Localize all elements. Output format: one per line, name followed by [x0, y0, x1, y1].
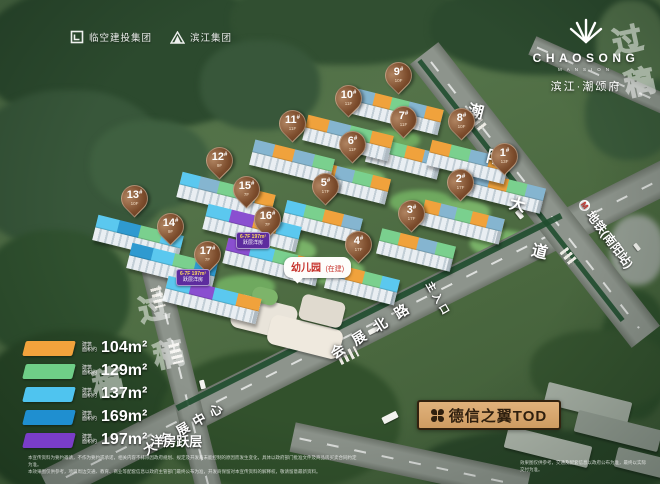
tod-badge: 德信之翼TOD [417, 400, 561, 430]
building-pin-10[interactable]: 10#11F [335, 85, 361, 119]
legend-caption: 建筑面积约 [82, 389, 97, 400]
legend-area: 104m² [101, 339, 147, 357]
linkong-logo-icon [70, 30, 84, 44]
disclaimer-line1: 本宣传资料为要约邀请，不作为要约或承诺，相关内容不排除因政府规划、规定及开发商未… [28, 454, 358, 468]
disclaimer-left: 本宣传资料为要约邀请，不作为要约或承诺，相关内容不排除因政府规划、规定及开发商未… [28, 454, 358, 475]
kindergarten-title: 幼儿园 [291, 263, 321, 274]
project-brand: CHAOSONG MANSION 滨江·潮颂府 [522, 16, 650, 94]
legend-row: 建筑面积约129m² [24, 363, 202, 379]
developer-logos: 临空建投集团 滨江集团 [70, 30, 232, 44]
building-pin-11[interactable]: 11#11F [279, 110, 305, 144]
developer-logo-linkong-label: 临空建投集团 [89, 30, 152, 44]
legend-area: 137m² [101, 385, 147, 403]
building-pin-12[interactable]: 12#9F [206, 147, 232, 181]
duplex-flat-badge: 6-7F 197m²跃层洋房 [236, 232, 270, 249]
brand-en-sub: MANSION [522, 67, 650, 72]
building-pin-6[interactable]: 6#11F [339, 131, 365, 165]
developer-logo-binjiang-label: 滨江集团 [190, 30, 232, 44]
disclaimer-right: 效果图仅供参考，交通及配套信息以政府公布为准，最终以实际交付为准。 [520, 459, 650, 473]
legend-row: 建筑面积约104m² [24, 340, 202, 356]
legend-area: 169m² [101, 408, 147, 426]
legend-row: 建筑面积约197m²洋房跃层 [24, 432, 202, 448]
brand-en: CHAOSONG [522, 51, 650, 65]
legend-swatch [22, 364, 76, 379]
duplex-flat-badge: 6-7F 197m²跃层洋房 [176, 269, 210, 286]
legend-row: 建筑面积约169m² [24, 409, 202, 425]
legend-caption: 建筑面积约 [82, 366, 97, 377]
developer-logo-linkong: 临空建投集团 [70, 30, 152, 44]
building-pin-14[interactable]: 14#9F [157, 213, 183, 247]
area-legend: 建筑面积约104m²建筑面积约129m²建筑面积约137m²建筑面积约169m²… [24, 340, 202, 455]
legend-caption: 建筑面积约 [82, 435, 97, 446]
developer-logo-binjiang: 滨江集团 [170, 30, 232, 44]
fan-shell-icon [566, 16, 606, 44]
building-pin-3[interactable]: 3#17F [398, 200, 424, 234]
building-pin-13[interactable]: 13#10F [121, 185, 147, 219]
legend-row: 建筑面积约137m² [24, 386, 202, 402]
disclaimer-line2: 本效果图仅供参考，项目周边交通、教育、商业等配套信息以政府主管部门最终公布为准，… [28, 468, 358, 475]
dexin-clover-icon [431, 409, 444, 422]
aerial-site-plan: 1#13F2#17F3#17F4#17F5#17F6#11F7#11F8#10F… [0, 0, 660, 484]
kindergarten-badge: 幼儿园 (在建) [284, 257, 351, 278]
building-pin-1[interactable]: 1#13F [491, 143, 517, 177]
building-pin-9[interactable]: 9#10F [385, 62, 411, 96]
building-pin-8[interactable]: 8#10F [448, 108, 474, 142]
kindergarten-status: (在建) [325, 266, 344, 273]
tod-badge-label: 德信之翼TOD [449, 405, 547, 426]
binjiang-logo-icon [170, 31, 185, 44]
brand-cn: 滨江·潮颂府 [522, 78, 650, 94]
legend-note: 洋房跃层 [150, 431, 202, 450]
legend-swatch [22, 387, 76, 402]
building-pin-15[interactable]: 15#7F [233, 176, 259, 210]
legend-caption: 建筑面积约 [82, 412, 97, 423]
building-pin-2[interactable]: 2#17F [447, 169, 473, 203]
legend-swatch [22, 433, 76, 448]
building-pin-5[interactable]: 5#17F [312, 173, 338, 207]
legend-area: 129m² [101, 362, 147, 380]
legend-swatch [22, 410, 76, 425]
building-pin-7[interactable]: 7#11F [390, 106, 416, 140]
legend-area: 197m² [101, 431, 147, 449]
legend-caption: 建筑面积约 [82, 343, 97, 354]
legend-swatch [22, 341, 76, 356]
